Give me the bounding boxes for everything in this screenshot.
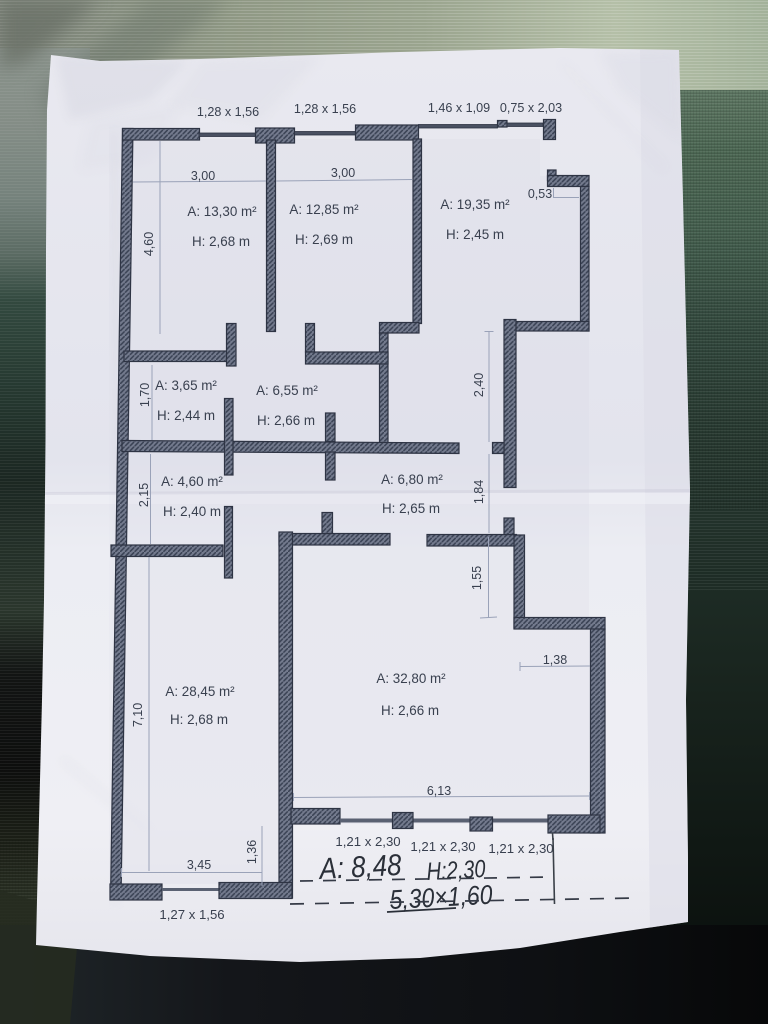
svg-text:2,40: 2,40 xyxy=(472,373,486,397)
svg-text:1,38: 1,38 xyxy=(543,653,567,667)
svg-text:A: 6,80 m²: A: 6,80 m² xyxy=(381,472,443,487)
svg-text:7,10: 7,10 xyxy=(131,703,145,727)
svg-text:3,00: 3,00 xyxy=(191,169,215,183)
svg-text:1,70: 1,70 xyxy=(138,383,152,407)
svg-text:0,53: 0,53 xyxy=(528,187,552,201)
svg-text:1,36: 1,36 xyxy=(245,840,259,864)
svg-text:A: 13,30 m²: A: 13,30 m² xyxy=(187,204,257,219)
svg-text:H: 2,44 m: H: 2,44 m xyxy=(157,408,215,423)
svg-text:1,84: 1,84 xyxy=(472,480,486,504)
svg-text:1,28 x 1,56: 1,28 x 1,56 xyxy=(197,105,259,119)
svg-text:3,45: 3,45 xyxy=(187,858,211,872)
svg-text:4,60: 4,60 xyxy=(142,232,156,256)
svg-text:A: 12,85 m²: A: 12,85 m² xyxy=(289,202,359,217)
svg-text:1,21 x 2,30: 1,21 x 2,30 xyxy=(410,839,475,854)
svg-text:H: 2,68 m: H: 2,68 m xyxy=(170,712,228,727)
svg-text:1,27 x 1,56: 1,27 x 1,56 xyxy=(159,907,224,922)
svg-text:H: 2,66 m: H: 2,66 m xyxy=(257,413,315,428)
svg-text:1,46 x 1,09: 1,46 x 1,09 xyxy=(428,101,490,115)
svg-text:A: 6,55 m²: A: 6,55 m² xyxy=(256,383,318,398)
svg-text:1,21 x 2,30: 1,21 x 2,30 xyxy=(488,841,553,856)
svg-text:2,15: 2,15 xyxy=(137,483,151,507)
svg-text:A: 3,65 m²: A: 3,65 m² xyxy=(155,378,217,393)
svg-text:A: 19,35 m²: A: 19,35 m² xyxy=(440,197,510,212)
svg-text:1,28 x 1,56: 1,28 x 1,56 xyxy=(294,102,356,116)
svg-text:H: 2,66 m: H: 2,66 m xyxy=(381,703,439,718)
svg-text:H: 2,68 m: H: 2,68 m xyxy=(192,234,250,249)
svg-text:0,75 x 2,03: 0,75 x 2,03 xyxy=(500,101,562,115)
svg-text:1,21 x 2,30: 1,21 x 2,30 xyxy=(335,834,400,849)
svg-text:H: 2,40 m: H: 2,40 m xyxy=(163,504,221,519)
svg-text:A: 28,45 m²: A: 28,45 m² xyxy=(165,684,235,699)
svg-text:H: 2,45 m: H: 2,45 m xyxy=(446,227,504,242)
svg-text:A: 4,60 m²: A: 4,60 m² xyxy=(161,474,223,489)
svg-text:A: 32,80 m²: A: 32,80 m² xyxy=(376,671,446,686)
svg-text:H: 2,69 m: H: 2,69 m xyxy=(295,232,353,247)
svg-text:H: 2,65 m: H: 2,65 m xyxy=(382,501,440,516)
svg-text:3,00: 3,00 xyxy=(331,166,355,180)
svg-text:6,13: 6,13 xyxy=(427,784,451,798)
svg-text:1,55: 1,55 xyxy=(470,566,484,590)
